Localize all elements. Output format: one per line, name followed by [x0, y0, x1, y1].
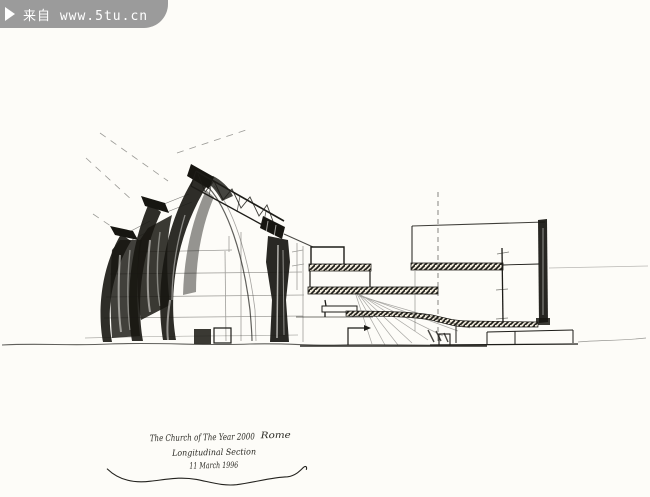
caption-date: 11 March 1996	[189, 461, 239, 472]
shell-tall	[160, 164, 233, 340]
sketch-drawing: The Church of The Year 2000 Rome Longitu…	[0, 0, 650, 497]
caption: The Church of The Year 2000 Rome Longitu…	[107, 430, 307, 487]
ground-line	[2, 335, 487, 346]
floor-ramp	[346, 311, 538, 327]
nave-cut-wall	[266, 234, 313, 342]
building-right-volume	[411, 219, 648, 325]
step-arrow	[348, 325, 371, 345]
building-left-volume	[296, 247, 438, 317]
caption-subtitle: Longitudinal Section	[171, 447, 256, 458]
caption-title: The Church of The Year 2000	[150, 432, 255, 444]
hatch-fan	[355, 292, 470, 345]
caption-location: Rome	[260, 431, 291, 442]
scanned-sketch-page: 来自 www.5tu.cn	[0, 0, 650, 497]
